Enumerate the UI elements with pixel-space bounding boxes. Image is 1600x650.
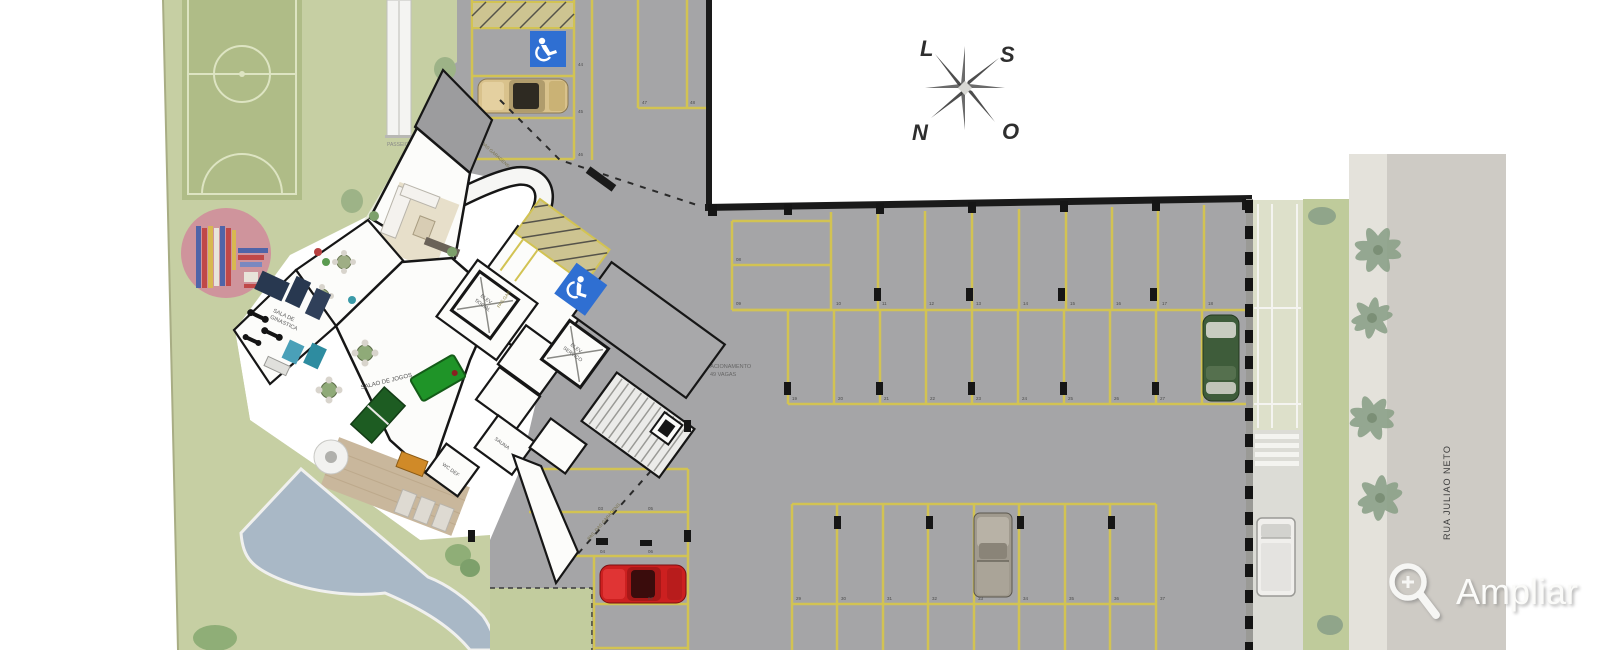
svg-text:44: 44 [578, 62, 584, 67]
svg-text:15: 15 [1070, 301, 1076, 306]
svg-text:19: 19 [792, 396, 798, 401]
svg-text:16: 16 [1116, 301, 1122, 306]
svg-text:O: O [1002, 119, 1019, 144]
svg-text:35: 35 [1069, 596, 1075, 601]
svg-text:PASSEIO: PASSEIO [387, 142, 409, 148]
svg-text:14: 14 [1023, 301, 1029, 306]
svg-text:47: 47 [642, 100, 648, 105]
svg-text:10: 10 [836, 301, 842, 306]
svg-text:Ampliar: Ampliar [1456, 571, 1578, 612]
svg-text:08: 08 [736, 257, 742, 262]
svg-text:09: 09 [736, 301, 742, 306]
svg-text:05: 05 [648, 506, 654, 511]
svg-text:13: 13 [976, 301, 982, 306]
svg-text:28: 28 [1206, 396, 1212, 401]
svg-text:33: 33 [978, 596, 984, 601]
svg-text:27: 27 [1160, 396, 1166, 401]
svg-text:17: 17 [1162, 301, 1168, 306]
svg-text:06: 06 [648, 549, 654, 554]
svg-text:37: 37 [1160, 596, 1166, 601]
svg-text:26: 26 [1114, 396, 1120, 401]
svg-text:46: 46 [578, 152, 584, 157]
svg-text:48: 48 [690, 100, 696, 105]
svg-text:34: 34 [1023, 596, 1029, 601]
svg-text:11: 11 [882, 301, 887, 306]
svg-text:49 VAGAS: 49 VAGAS [710, 372, 737, 378]
svg-text:07: 07 [648, 596, 654, 601]
svg-text:31: 31 [887, 596, 893, 601]
svg-text:25: 25 [1068, 396, 1074, 401]
svg-text:45: 45 [578, 109, 584, 114]
svg-text:20: 20 [838, 396, 844, 401]
svg-text:03: 03 [598, 506, 604, 511]
svg-text:21: 21 [884, 396, 890, 401]
svg-text:36: 36 [1114, 596, 1120, 601]
svg-text:N: N [912, 120, 929, 145]
svg-text:12: 12 [929, 301, 935, 306]
svg-text:29: 29 [796, 596, 802, 601]
svg-text:04: 04 [600, 549, 606, 554]
svg-text:S: S [1000, 42, 1015, 67]
svg-text:30: 30 [841, 596, 847, 601]
svg-text:32: 32 [932, 596, 938, 601]
svg-text:18: 18 [1208, 301, 1214, 306]
svg-text:RUA JULIAO NETO: RUA JULIAO NETO [1442, 445, 1452, 540]
svg-text:23: 23 [976, 396, 982, 401]
svg-text:22: 22 [930, 396, 936, 401]
svg-text:L: L [920, 36, 933, 61]
svg-text:24: 24 [1022, 396, 1028, 401]
